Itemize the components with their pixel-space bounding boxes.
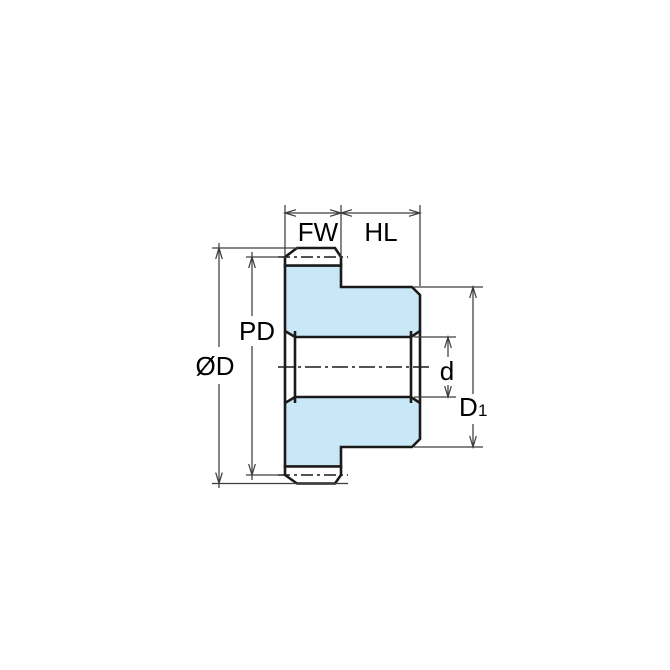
dim-label-d1: D [459, 392, 478, 422]
gear-dimension-drawing: FW HL ØD PD d D [0, 0, 670, 670]
dim-pitch-diameter: PD [239, 252, 281, 480]
dim-label-d: d [440, 356, 454, 386]
dim-label-fw: FW [298, 217, 339, 247]
dim-label-hl: HL [364, 217, 397, 247]
drawing-canvas: FW HL ØD PD d D [0, 0, 670, 670]
dim-label-od: ØD [196, 351, 235, 381]
dim-label-d1-subscript: 1 [478, 401, 487, 420]
gear-cross-section [285, 248, 420, 484]
gear-body-lower-section [285, 397, 420, 467]
dim-label-pd: PD [239, 316, 275, 346]
gear-body-upper-section [285, 266, 420, 338]
